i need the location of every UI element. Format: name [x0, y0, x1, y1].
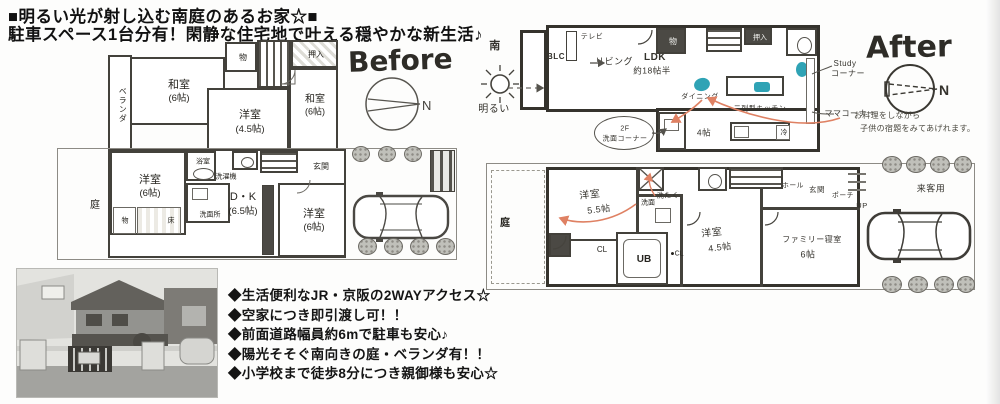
after-1f-stairs — [729, 167, 783, 189]
bush-icon — [436, 238, 455, 255]
kitchen-island — [726, 76, 784, 96]
sink-icon — [192, 188, 208, 200]
step-line — [848, 173, 866, 175]
partition — [760, 207, 860, 210]
after-note-line2: 子供の宿題をみてあげれます。 — [860, 123, 975, 134]
bush-icon — [404, 146, 422, 162]
before-1f-bath: 浴室 — [186, 151, 216, 181]
car-icon — [352, 192, 450, 242]
flyer-page: ■明るい光が射し込む南庭のあるお家☆■ 駐車スペース1台分有！閑静な住宅地で叶え… — [0, 0, 1000, 404]
bush-icon — [384, 238, 403, 255]
bullet-item: ◆前面道路幅員約6mで駐車も安心♪ — [228, 325, 498, 345]
bullet-item: ◆空家につき即引渡し可！！ — [228, 306, 498, 326]
after-2f-balcony — [520, 30, 547, 110]
before-1f-yoshitsu1: 洋室 (6帖) 物 床 — [110, 151, 186, 235]
bush-icon — [957, 276, 975, 293]
paper-edge-shading — [986, 0, 1000, 404]
before-1f-washroom: 洗面所 — [186, 183, 230, 223]
bullet-item: ◆小学校まで徒歩8分につき親御様も安心☆ — [228, 364, 498, 384]
exterior-photo — [16, 268, 218, 398]
sink-icon — [655, 208, 671, 223]
bush-icon — [906, 156, 926, 173]
before-garden-label: 庭 — [90, 201, 100, 212]
south-label: 南 — [489, 41, 501, 53]
toilet-icon — [241, 157, 254, 168]
entrance-label: 玄関 — [313, 163, 329, 171]
bush-icon — [410, 238, 429, 255]
after-2f-oshiire: 押入 — [744, 28, 772, 45]
bush-icon — [378, 146, 396, 162]
bush-icon — [882, 156, 902, 173]
after-2f-toilet — [786, 28, 817, 56]
before-2f-yoshitsu: 洋室 (4.5帖) — [207, 88, 289, 153]
toilet-icon — [797, 37, 812, 54]
closet-toko: 床 — [137, 207, 181, 234]
before-2f-veranda: ベランダ — [108, 55, 132, 152]
bush-icon — [352, 146, 370, 162]
dk-label: D・K — [230, 192, 256, 204]
desk-strip — [806, 58, 815, 124]
tv-icon — [566, 31, 577, 61]
selling-points-list: ◆生活便利なJR・京阪の2WAYアクセス☆ ◆空家につき即引渡し可！！ ◆前面道… — [228, 286, 498, 384]
laundry-box — [638, 167, 664, 191]
kitchen-counter — [262, 185, 274, 255]
after-1f-toilet — [698, 167, 727, 191]
sink-teal — [754, 82, 770, 92]
closet-mono: 物 — [113, 207, 136, 234]
after-2f-closet: 物 — [656, 28, 686, 54]
after-1f-ub: UB — [616, 232, 668, 285]
car-icon — [866, 208, 972, 264]
before-1f-toilet — [232, 151, 258, 170]
svg-text:N: N — [939, 82, 949, 98]
stove-icon — [734, 126, 749, 138]
bright-label: 明るい — [478, 105, 510, 116]
toilet-icon — [708, 174, 722, 189]
after-note-line1: お料理をしながら — [854, 110, 920, 121]
wash-corner-note-bubble: 2F 洗面コーナー — [594, 116, 654, 150]
bush-icon — [934, 276, 954, 293]
before-1f-stairs — [260, 151, 298, 173]
kitchen-counter2: 冷 — [730, 122, 790, 141]
before-2f-stairs — [257, 40, 291, 88]
svg-text:N: N — [422, 98, 431, 113]
before-2f-closet: 物 — [225, 42, 257, 72]
bathtub-icon — [193, 168, 214, 180]
after-title: After — [866, 29, 952, 65]
sun-icon — [478, 62, 522, 106]
veranda-label: ベランダ — [118, 87, 126, 123]
washer-label: 洗濯機 — [216, 173, 237, 180]
step-line — [848, 189, 866, 191]
before-compass-icon: N — [360, 74, 440, 136]
partition — [680, 194, 683, 287]
before-2f-washitsu2: 和室 (6帖) — [289, 68, 338, 153]
bush-icon — [358, 238, 377, 255]
bush-icon — [954, 156, 972, 173]
fridge-icon: 冷 — [776, 125, 790, 140]
bullet-item: ◆陽光そそぐ南向きの庭・ベランダ有！！ — [228, 345, 498, 365]
after-2f-wash-corner — [658, 112, 686, 150]
bush-icon — [930, 156, 950, 173]
bullet-item: ◆生活便利なJR・京阪の2WAYアクセス☆ — [228, 286, 498, 306]
bush-icon — [882, 276, 902, 293]
step-line — [848, 181, 866, 183]
tansu-dark — [549, 233, 571, 257]
before-2f-oshiire: 押入 — [291, 40, 338, 68]
sink-icon — [664, 119, 679, 131]
gate-lattice — [430, 150, 455, 192]
bush-icon — [908, 276, 928, 293]
after-2f-stairs — [706, 28, 742, 52]
before-1f-yoshitsu2: 洋室 (6帖) — [278, 183, 346, 257]
